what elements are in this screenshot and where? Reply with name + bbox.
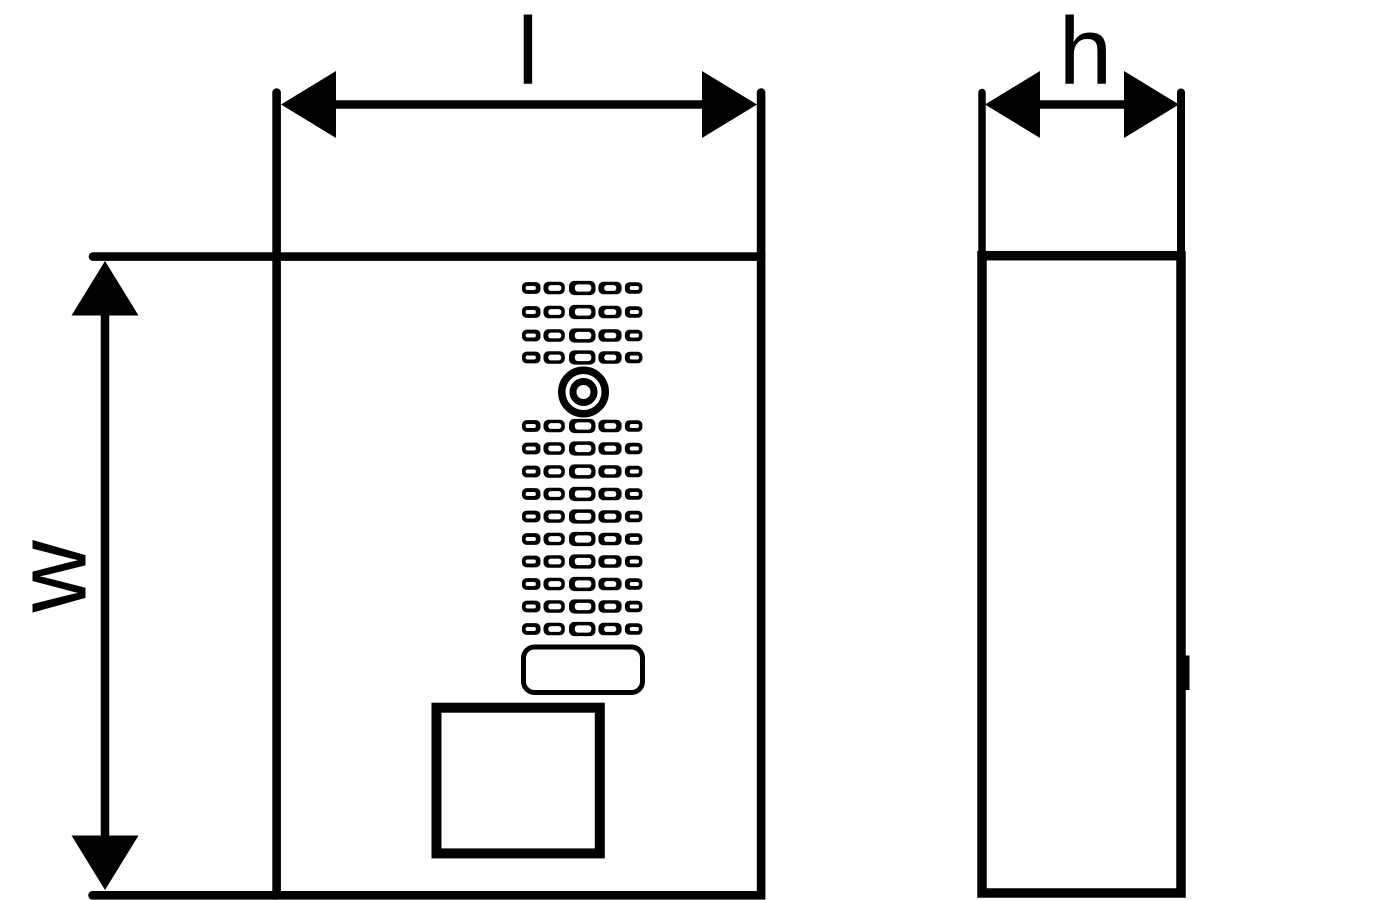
svg-text:l: l: [517, 0, 538, 105]
svg-text:h: h: [1059, 0, 1112, 105]
svg-text:w: w: [0, 540, 108, 614]
